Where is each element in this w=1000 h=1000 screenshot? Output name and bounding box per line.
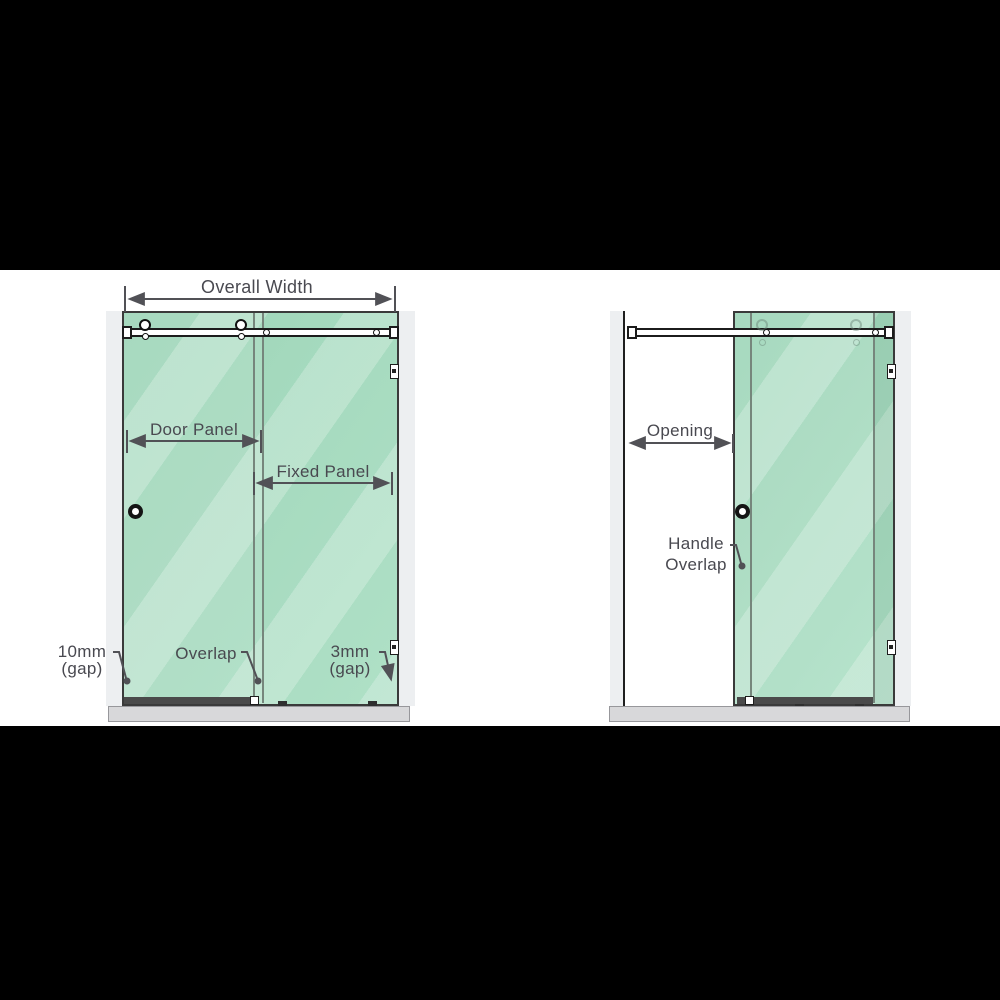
wall-bracket [887, 640, 896, 655]
wall-bracket [887, 364, 896, 379]
fixed-panel-label: Fixed Panel [254, 463, 392, 480]
rail-end-cap-left [627, 326, 637, 339]
roller-wheel [139, 319, 151, 331]
gap-left-label: 10mm (gap) [52, 643, 112, 677]
overall-width-label: Overall Width [137, 279, 377, 296]
door-bottom-seal [124, 697, 259, 704]
opening-label: Opening [627, 422, 733, 439]
gap-right-line2: (gap) [320, 660, 380, 677]
door-panel-right-edge [262, 313, 264, 703]
door-panel-glass [735, 313, 873, 697]
wall-strip-right [397, 311, 415, 706]
roller-bolt [142, 333, 149, 340]
roller-bolt [238, 333, 245, 340]
wall-bracket [390, 364, 399, 379]
roller-wheel [235, 319, 247, 331]
gap-right-label: 3mm (gap) [320, 643, 380, 677]
fixed-panel-clip [368, 701, 377, 706]
wall-strip-left [610, 311, 625, 706]
handle-overlap-line1: Handle [662, 533, 730, 554]
rail-end-cap-left [122, 326, 132, 339]
gap-left-line1: 10mm [52, 643, 112, 660]
gap-left-line2: (gap) [52, 660, 112, 677]
door-panel-label: Door Panel [127, 421, 261, 438]
diagram-canvas: Overall Width Door Panel Fixed Panel 10m… [0, 0, 1000, 1000]
wall-bracket [390, 640, 399, 655]
door-bottom-seal [737, 697, 873, 704]
top-rail [129, 328, 391, 337]
rail-screw [763, 329, 770, 336]
ghost-roller-bolt [853, 339, 860, 346]
rail-screw [872, 329, 879, 336]
rail-end-cap-right [389, 326, 399, 339]
bottom-guide-block [250, 696, 259, 705]
overlap-label: Overlap [171, 645, 241, 662]
fixed-panel-clip [278, 701, 287, 706]
handle-overlap-line2: Overlap [662, 554, 730, 575]
bottom-guide-block [745, 696, 754, 705]
rail-screw [373, 329, 380, 336]
rail-end-cap-right [884, 326, 894, 339]
bottom-letterbox-bar [0, 726, 1000, 1000]
door-handle-knob [128, 504, 143, 519]
floor-tray [609, 706, 910, 722]
ghost-roller-bolt [759, 339, 766, 346]
ghost-roller-wheel [850, 319, 862, 331]
top-letterbox-bar [0, 0, 1000, 270]
fixed-panel-left-edge [253, 313, 255, 704]
floor-tray [108, 706, 410, 722]
gap-right-line1: 3mm [320, 643, 380, 660]
handle-overlap-label: Handle Overlap [662, 533, 730, 575]
rail-screw [263, 329, 270, 336]
door-handle-knob [735, 504, 750, 519]
fixed-panel-left-edge [750, 313, 752, 704]
